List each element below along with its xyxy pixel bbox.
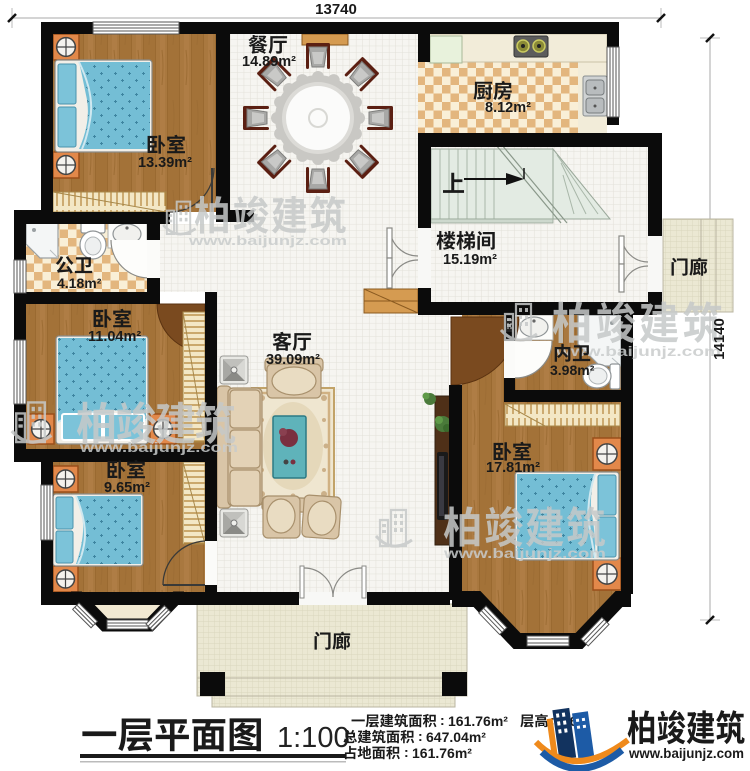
svg-text:1:100: 1:100	[277, 722, 350, 754]
svg-text:www.baijunjz.com: www.baijunjz.com	[628, 745, 744, 761]
svg-text::: :	[404, 744, 409, 760]
svg-text:161.76m²: 161.76m²	[448, 713, 508, 729]
svg-text:8.12m²: 8.12m²	[485, 100, 531, 116]
svg-text:14140: 14140	[711, 318, 728, 360]
svg-text:39.09m²: 39.09m²	[266, 352, 320, 368]
svg-text::: :	[418, 728, 423, 744]
svg-text:13740: 13740	[315, 1, 357, 18]
svg-text:13.39m²: 13.39m²	[138, 155, 192, 171]
svg-text:www.baijunjz.com: www.baijunjz.com	[79, 440, 238, 455]
svg-text:15.19m²: 15.19m²	[443, 252, 497, 268]
svg-text:647.04m²: 647.04m²	[426, 729, 486, 745]
svg-text:9.65m²: 9.65m²	[104, 480, 150, 496]
svg-text:3.98m²: 3.98m²	[550, 362, 595, 378]
svg-text:4.18m²: 4.18m²	[57, 275, 102, 291]
svg-text:www.baijunjz.com: www.baijunjz.com	[443, 546, 606, 561]
svg-text:161.76m²: 161.76m²	[412, 745, 472, 761]
svg-text:14.89m²: 14.89m²	[242, 54, 296, 70]
svg-text:17.81m²: 17.81m²	[486, 460, 540, 476]
svg-text:11.04m²: 11.04m²	[88, 329, 141, 345]
svg-text:www.baijunjz.com: www.baijunjz.com	[188, 233, 347, 248]
svg-text::: :	[440, 712, 445, 728]
